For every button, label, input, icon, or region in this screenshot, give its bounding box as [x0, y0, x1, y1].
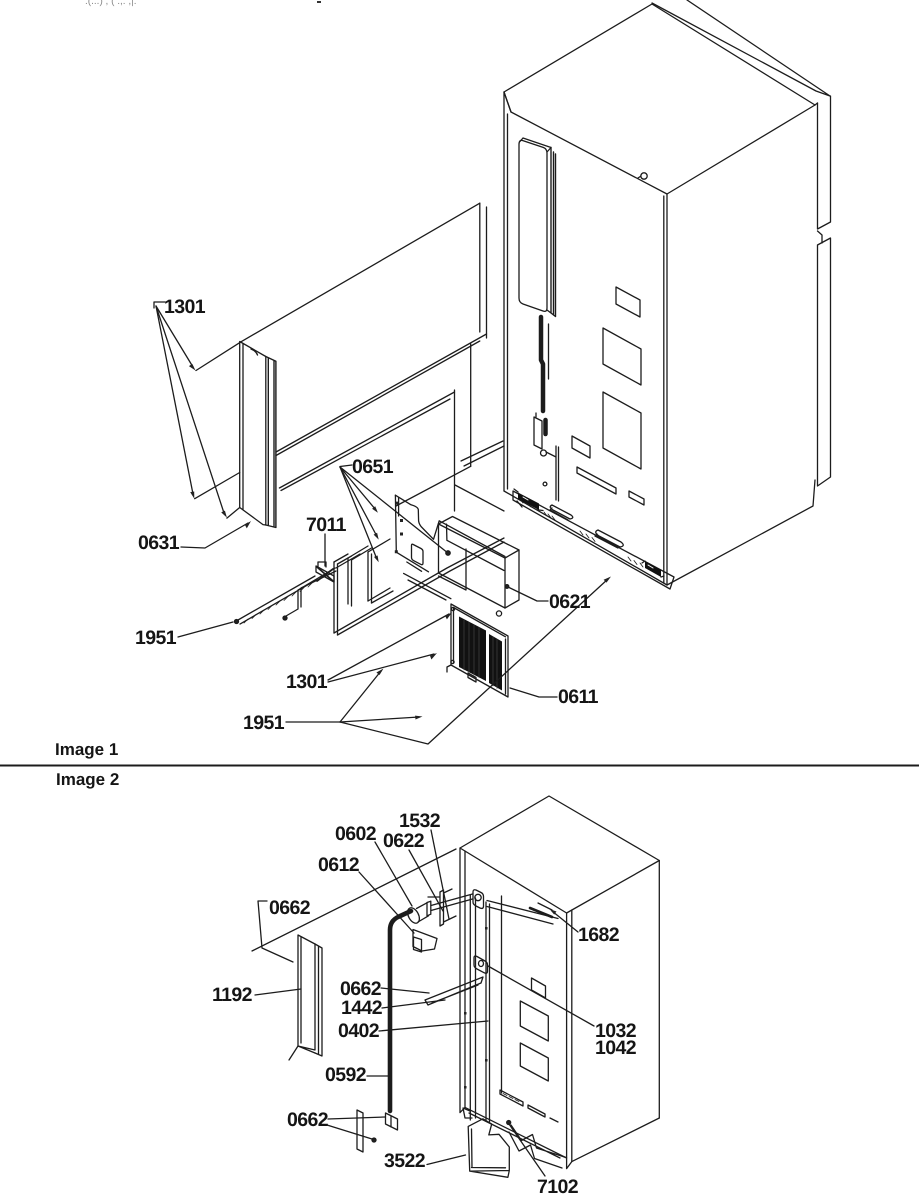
svg-text:0631: 0631	[138, 532, 180, 554]
svg-text:0612: 0612	[318, 854, 360, 876]
svg-text:.(...) , ( .,. ,|.: .(...) , ( .,. ,|.	[85, 0, 136, 7]
svg-text:7102: 7102	[537, 1176, 579, 1198]
svg-text:1442: 1442	[341, 997, 383, 1019]
svg-text:0621: 0621	[549, 591, 591, 613]
svg-text:0651: 0651	[352, 456, 394, 478]
svg-text:3522: 3522	[384, 1150, 426, 1172]
svg-text:1192: 1192	[212, 984, 253, 1006]
svg-text:0611: 0611	[558, 686, 599, 708]
svg-text:0662: 0662	[269, 897, 311, 919]
svg-text:1301: 1301	[164, 296, 206, 318]
svg-text:Image 1: Image 1	[55, 740, 118, 759]
svg-text:7011: 7011	[306, 514, 347, 536]
svg-text:1951: 1951	[135, 627, 177, 649]
svg-text:1301: 1301	[286, 671, 328, 693]
svg-text:1042: 1042	[595, 1037, 637, 1059]
svg-text:1682: 1682	[578, 924, 620, 946]
svg-text:0592: 0592	[325, 1064, 367, 1086]
svg-text:1532: 1532	[399, 810, 441, 832]
svg-text:0662: 0662	[287, 1109, 329, 1131]
svg-text:Image 2: Image 2	[56, 770, 119, 789]
svg-text:0622: 0622	[383, 830, 425, 852]
svg-text:0602: 0602	[335, 823, 377, 845]
svg-text:0402: 0402	[338, 1020, 380, 1042]
svg-text:1951: 1951	[243, 712, 285, 734]
